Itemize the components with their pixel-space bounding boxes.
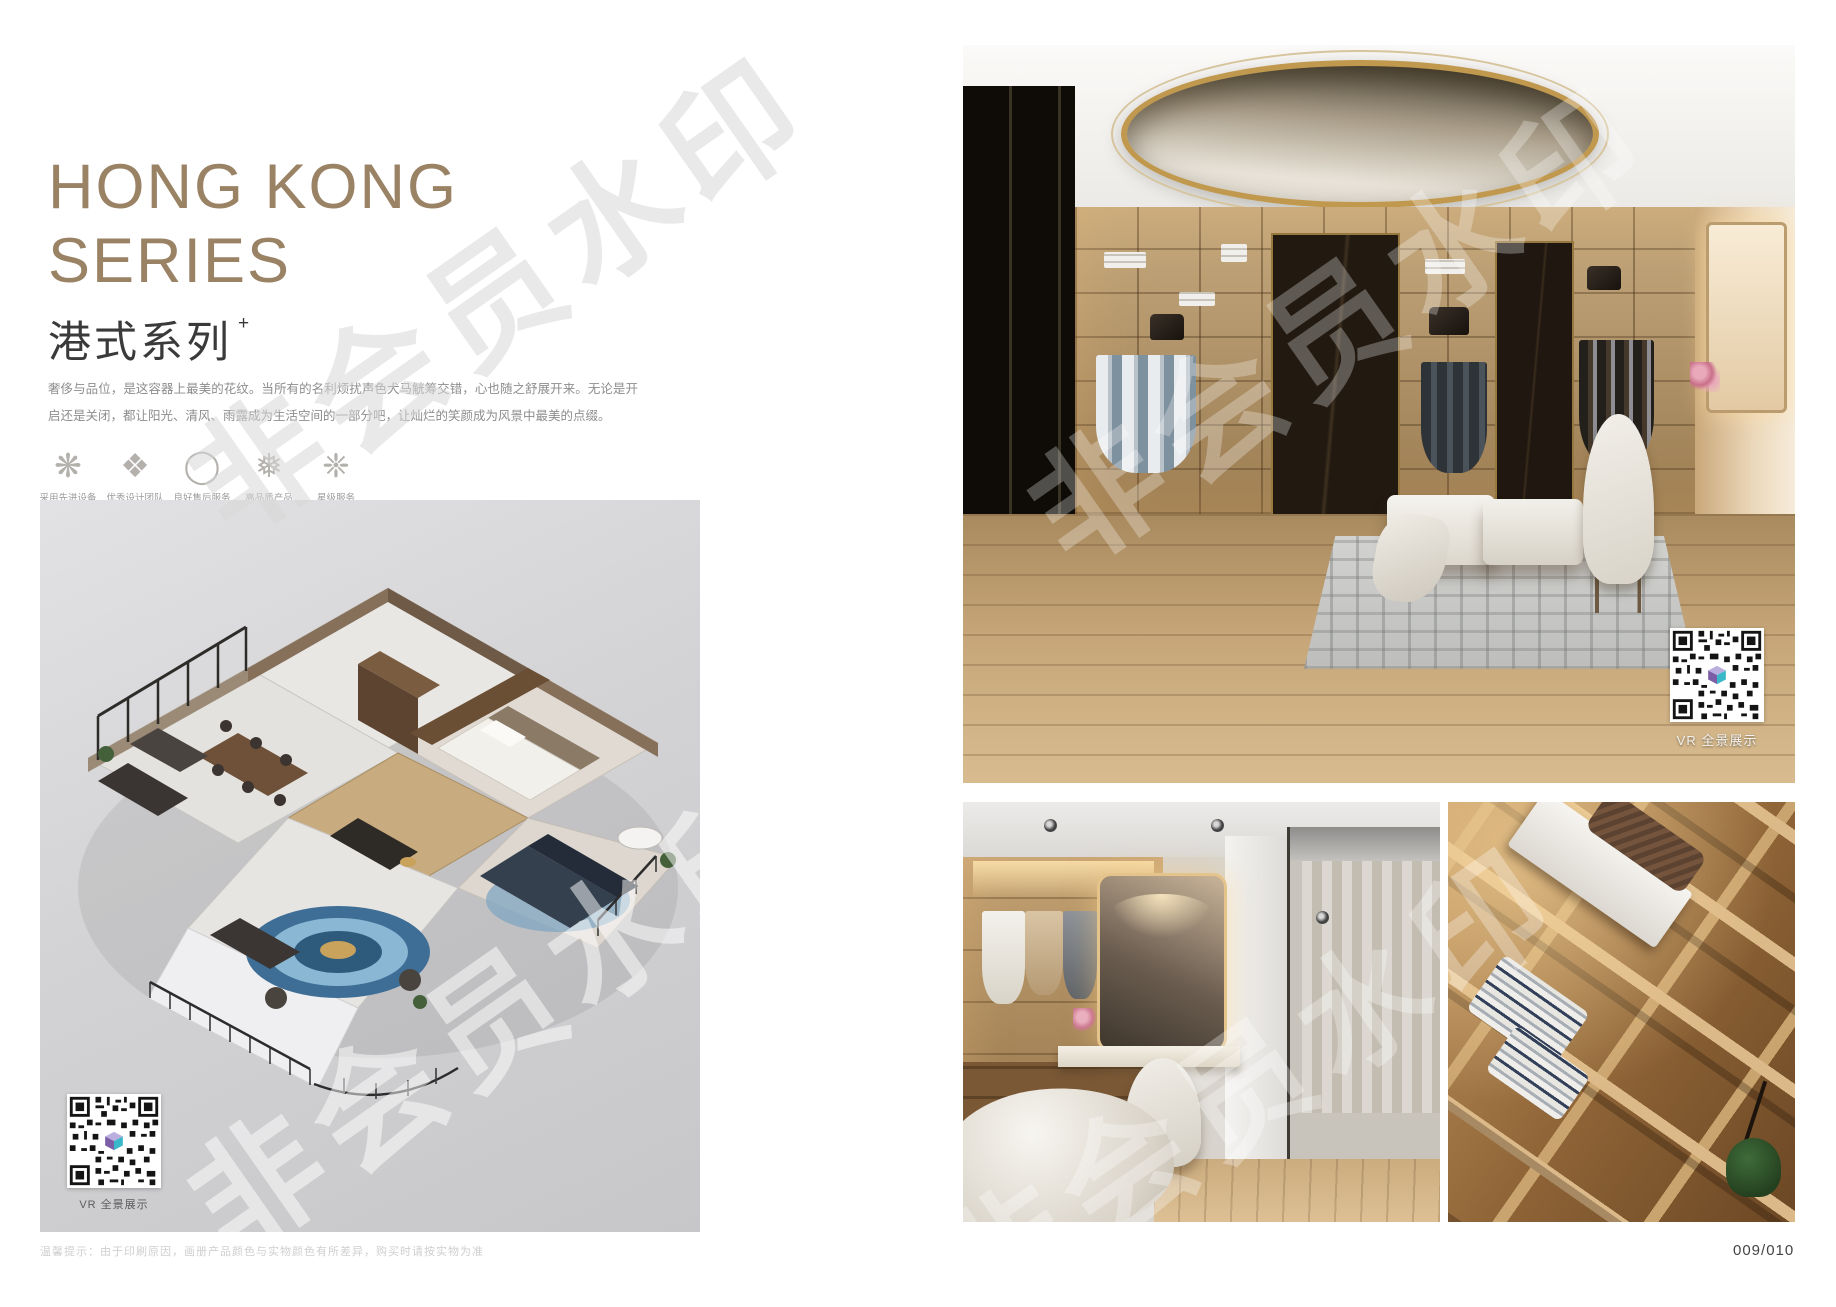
handbag	[1587, 266, 1621, 290]
feature-list: ❋ 采用先进设备 ❖ 优秀设计团队 ◯ 良好售后服务 ❅ 高品质产品 ❈ 星级服…	[40, 448, 364, 504]
clover-ornament-icon: ❋	[54, 448, 82, 484]
partition-frame	[1287, 827, 1290, 1163]
folded-clothes	[1221, 244, 1247, 262]
hanging-clothes	[1421, 362, 1488, 473]
catalog-page: HONG KONG SERIES 港式系列+ 奢侈与品位，是这容器上最美的花纹。…	[0, 0, 1836, 1307]
feature-item: ❋ 采用先进设备	[40, 448, 96, 504]
snowflake-icon: ❅	[255, 448, 283, 484]
flower-vase	[1690, 362, 1720, 392]
feature-item: ❖ 优秀设计团队	[107, 448, 163, 504]
wood-floor	[1154, 1159, 1440, 1222]
hanging-clothes	[1096, 355, 1196, 473]
ring-icon: ◯	[184, 448, 221, 484]
ceiling-spotlight	[1044, 819, 1057, 832]
white-ottoman-bed	[1483, 499, 1583, 565]
center-cabinet	[1271, 233, 1400, 517]
qr-code-image	[1670, 628, 1764, 722]
handbag	[1150, 314, 1184, 340]
handbag	[1429, 307, 1469, 335]
flower-vase	[1073, 1008, 1099, 1034]
plant-decor	[1726, 1138, 1782, 1197]
folded-clothes	[1104, 252, 1146, 268]
photo-dressing-table	[963, 802, 1440, 1222]
vanity-mirror	[1097, 873, 1227, 1051]
rosette-icon: ❖	[120, 448, 150, 484]
ceiling-ring-light	[1121, 60, 1599, 209]
series-description: 奢侈与品位，是这容器上最美的花纹。当所有的名利烦扰声色犬马觥筹交错，心也随之舒展…	[48, 376, 638, 430]
folded-clothes	[1425, 259, 1465, 274]
qr-code-image	[67, 1094, 161, 1188]
reflected-blinds	[1302, 861, 1440, 1113]
footer-disclaimer: 温馨提示：由于印刷原因，画册产品颜色与实物颜色有所差异，购买时请按实物为准	[40, 1243, 484, 1259]
right-cabinet	[1495, 241, 1574, 514]
hanging-clothes	[1063, 911, 1096, 999]
title-cn-text: 港式系列	[48, 319, 232, 367]
feature-item: ❅ 高品质产品	[241, 448, 297, 504]
ceiling-spotlight	[1211, 819, 1224, 832]
page-number: 009/010	[1733, 1242, 1794, 1259]
vr-caption: VR 全景展示	[1667, 730, 1767, 749]
white-column	[1225, 836, 1287, 1164]
title-line1: HONG KONG	[48, 150, 458, 224]
partition-header	[1287, 827, 1440, 861]
star-ornament-icon: ❈	[322, 448, 350, 484]
floor-plan-panel: VR 全景展示	[40, 500, 700, 1232]
photo-shelf-closeup	[1448, 802, 1795, 1222]
floor-plan-image	[58, 528, 682, 1108]
title-plus-mark: +	[238, 313, 252, 334]
folded-clothes	[1179, 292, 1215, 306]
series-title-english: HONG KONG SERIES	[48, 150, 458, 298]
hanging-clothes	[1025, 911, 1063, 995]
feature-item: ❈ 星级服务	[308, 448, 364, 504]
vr-caption: VR 全景展示	[64, 1196, 164, 1212]
vr-qr-block: VR 全景展示	[1667, 628, 1767, 749]
series-title-chinese: 港式系列+	[48, 308, 252, 370]
hanging-clothes	[982, 911, 1025, 1003]
photo-walk-in-closet: VR 全景展示	[963, 45, 1795, 783]
vr-qr-block: VR 全景展示	[64, 1094, 164, 1212]
title-line2: SERIES	[48, 224, 458, 298]
feature-item: ◯ 良好售后服务	[174, 448, 230, 504]
